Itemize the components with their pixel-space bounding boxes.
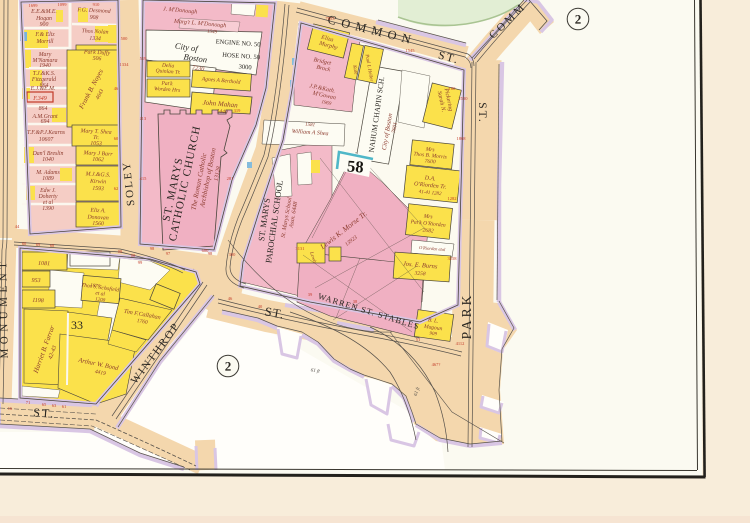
svg-text:100: 100 <box>449 86 457 91</box>
svg-text:PARK: PARK <box>459 293 474 340</box>
svg-text:7853: 7853 <box>326 16 336 21</box>
svg-text:500: 500 <box>121 36 129 41</box>
svg-text:46: 46 <box>114 86 119 91</box>
svg-text:1099: 1099 <box>58 2 68 7</box>
svg-text:506: 506 <box>93 56 102 62</box>
svg-text:99: 99 <box>138 260 143 265</box>
svg-text:1868: 1868 <box>457 136 467 141</box>
svg-text:1390: 1390 <box>42 206 54 212</box>
svg-text:65: 65 <box>42 402 47 407</box>
svg-text:60: 60 <box>114 136 119 141</box>
svg-text:1053: 1053 <box>90 141 102 148</box>
svg-text:1040: 1040 <box>42 156 54 163</box>
svg-text:1081: 1081 <box>38 261 50 267</box>
svg-text:98: 98 <box>208 251 213 256</box>
svg-text:Eliz A.: Eliz A. <box>89 208 106 215</box>
svg-text:69: 69 <box>36 242 41 247</box>
svg-text:E.E.&M.E.: E.E.&M.E. <box>30 9 57 15</box>
svg-text:33: 33 <box>71 318 83 332</box>
svg-text:415: 415 <box>140 176 148 181</box>
svg-text:61: 61 <box>62 404 67 409</box>
svg-text:10607: 10607 <box>39 137 55 143</box>
svg-text:J13: J13 <box>140 116 147 121</box>
svg-text:4112: 4112 <box>456 341 465 346</box>
svg-text:51: 51 <box>416 337 421 342</box>
svg-text:1560: 1560 <box>92 221 104 228</box>
svg-text:864: 864 <box>39 105 48 112</box>
svg-text:3131: 3131 <box>296 246 305 251</box>
svg-text:1549: 1549 <box>207 30 218 36</box>
svg-text:1440: 1440 <box>216 108 228 116</box>
svg-text:D.A.: D.A. <box>423 175 436 182</box>
svg-text:Kirwin: Kirwin <box>89 179 107 186</box>
svg-text:319: 319 <box>234 108 242 113</box>
svg-text:467?: 467? <box>432 362 441 367</box>
svg-text:98: 98 <box>150 246 155 251</box>
svg-text:46: 46 <box>228 296 233 301</box>
svg-text:60: 60 <box>22 241 27 246</box>
svg-text:38: 38 <box>353 299 358 304</box>
svg-text:F.349: F.349 <box>32 95 46 102</box>
svg-text:71: 71 <box>26 400 31 405</box>
svg-text:7600: 7600 <box>424 158 436 165</box>
svg-text:3000: 3000 <box>238 64 251 72</box>
svg-text:300: 300 <box>229 252 237 257</box>
svg-text:16: 16 <box>8 406 13 411</box>
svg-text:63: 63 <box>52 403 57 408</box>
svg-text:1593: 1593 <box>92 186 104 193</box>
svg-text:1334: 1334 <box>89 35 101 43</box>
svg-text:68: 68 <box>50 243 55 248</box>
svg-text:2530: 2530 <box>459 96 469 101</box>
svg-text:3258: 3258 <box>413 270 426 277</box>
svg-text:97: 97 <box>166 251 171 256</box>
svg-text:1940: 1940 <box>39 62 51 69</box>
svg-text:Mrs: Mrs <box>422 213 432 220</box>
svg-text:2: 2 <box>225 359 232 374</box>
svg-text:2: 2 <box>575 12 582 27</box>
svg-text:953: 953 <box>31 278 40 284</box>
svg-text:08: 08 <box>131 253 136 258</box>
svg-text:910: 910 <box>93 2 101 7</box>
svg-text:1282: 1282 <box>448 196 457 201</box>
svg-text:1062: 1062 <box>92 157 104 164</box>
svg-text:1699: 1699 <box>29 3 39 8</box>
svg-text:T.F.&P.J.Kearns: T.F.&P.J.Kearns <box>27 130 66 136</box>
svg-text:908: 908 <box>90 15 99 21</box>
svg-text:09: 09 <box>118 249 123 254</box>
svg-text:40: 40 <box>258 304 263 309</box>
svg-text:281: 281 <box>227 176 234 181</box>
svg-text:44: 44 <box>15 224 20 229</box>
svg-text:ST.: ST. <box>476 102 488 123</box>
svg-text:900: 900 <box>40 22 49 28</box>
svg-text:1198: 1198 <box>32 298 44 304</box>
svg-text:519: 519 <box>140 56 148 61</box>
svg-text:E.J.&E.M.: E.J.&E.M. <box>30 86 56 92</box>
svg-text:MONUMENT: MONUMENT <box>0 258 11 359</box>
svg-text:1334: 1334 <box>120 62 130 67</box>
svg-text:F.& Eliz: F.& Eliz <box>34 32 55 38</box>
svg-text:1581: 1581 <box>305 123 315 129</box>
svg-text:694: 694 <box>41 118 50 125</box>
svg-text:39: 39 <box>308 292 313 297</box>
svg-text:1089: 1089 <box>42 176 54 182</box>
svg-text:Morrill: Morrill <box>35 39 53 45</box>
svg-text:58: 58 <box>346 156 364 176</box>
svg-text:3258: 3258 <box>448 256 458 261</box>
svg-text:2682: 2682 <box>422 227 434 234</box>
svg-text:62: 62 <box>114 186 119 191</box>
svg-text:1545: 1545 <box>406 48 416 53</box>
